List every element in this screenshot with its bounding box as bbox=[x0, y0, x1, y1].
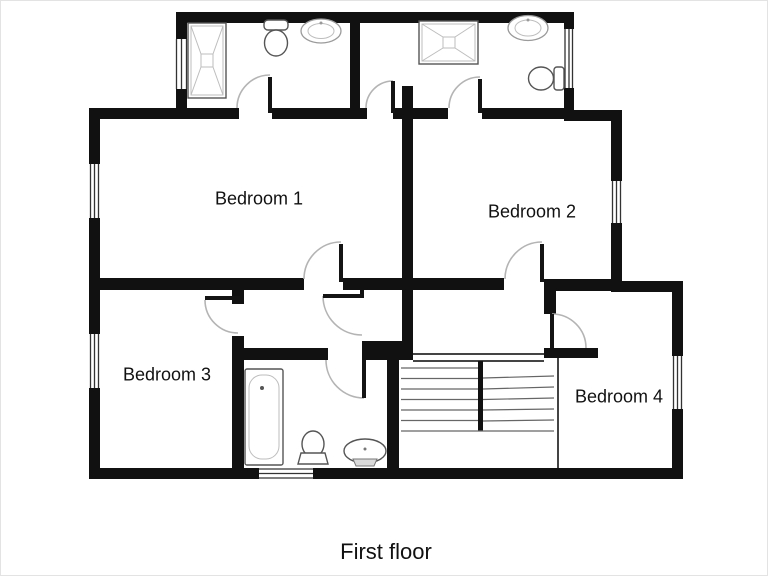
window bbox=[173, 39, 189, 89]
door-ensuite2-right bbox=[449, 77, 480, 113]
room-label-bedroom-2: Bedroom 2 bbox=[488, 202, 576, 223]
window bbox=[87, 164, 102, 218]
shower-icon bbox=[419, 21, 478, 64]
window bbox=[609, 181, 624, 223]
window bbox=[259, 466, 313, 481]
floorplan-drawing bbox=[1, 1, 768, 576]
floor-caption: First floor bbox=[340, 539, 432, 565]
room-label-bedroom-1: Bedroom 1 bbox=[215, 189, 303, 210]
toilet-icon bbox=[298, 431, 328, 464]
door-bedroom2 bbox=[505, 242, 542, 282]
toilet-icon bbox=[529, 67, 565, 90]
shower-icon bbox=[188, 23, 226, 98]
toilet-icon bbox=[264, 20, 288, 56]
room-label-bedroom-3: Bedroom 3 bbox=[123, 365, 211, 386]
door-ensuite1 bbox=[237, 75, 270, 113]
room-label-bedroom-4: Bedroom 4 bbox=[575, 387, 663, 408]
sink-icon bbox=[301, 19, 341, 43]
door-bathroom bbox=[326, 360, 364, 398]
door-ensuite2-left bbox=[366, 81, 393, 113]
sink-icon bbox=[344, 439, 386, 466]
door-cupboard bbox=[323, 296, 362, 335]
bathtub-icon bbox=[245, 369, 283, 465]
window bbox=[87, 334, 102, 388]
stairs bbox=[401, 361, 554, 431]
window bbox=[670, 356, 685, 409]
door-bedroom1 bbox=[304, 242, 341, 282]
door-bedroom4 bbox=[552, 314, 586, 348]
sink-icon bbox=[508, 16, 548, 41]
floorplan-page: Bedroom 1 Bedroom 2 Bedroom 3 Bedroom 4 … bbox=[0, 0, 768, 576]
